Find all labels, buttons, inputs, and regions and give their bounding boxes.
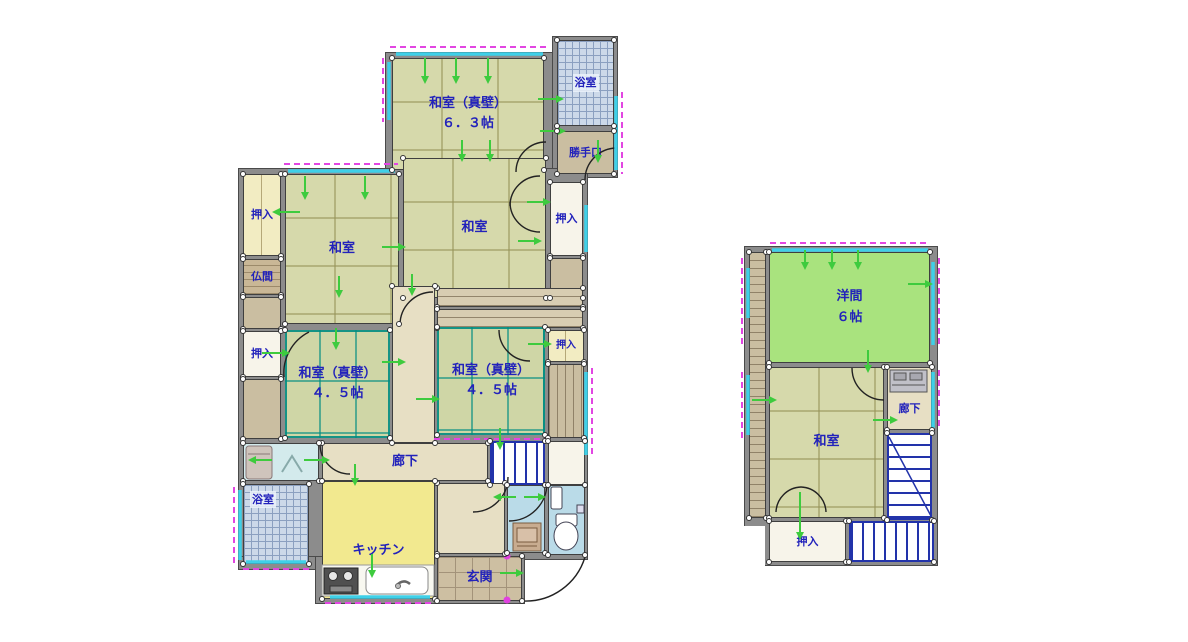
wall-joint-dot xyxy=(519,598,525,604)
room-size-label: ６．３帖 xyxy=(442,114,494,134)
wall-joint-dot xyxy=(545,361,551,367)
wall-joint-dot xyxy=(927,249,933,255)
corridor-main: 廊下 xyxy=(322,443,488,481)
room-label: 押入 xyxy=(251,345,273,362)
wall-joint-dot xyxy=(432,440,438,446)
room-bath-lower: 浴室 xyxy=(243,484,309,564)
wall-joint-dot xyxy=(611,37,617,43)
room-youma-6: 洋間 ６帖 xyxy=(769,252,930,363)
room-size-label: ４．５帖 xyxy=(311,384,363,404)
room-label: 押入 xyxy=(556,210,578,227)
wall-joint-dot xyxy=(931,518,937,524)
room-label: 押入 xyxy=(251,206,273,223)
room-washitsu-6-3: 和室（真壁） ６．３帖 xyxy=(392,58,544,170)
wall-joint-dot xyxy=(582,438,588,444)
stairs-first-floor xyxy=(490,441,545,485)
room-oshiire-2f: 押入 xyxy=(769,521,846,562)
wall-joint-dot xyxy=(282,435,288,441)
wall-joint-dot xyxy=(316,440,322,446)
room-butsuma: 仏間 xyxy=(243,259,281,295)
wall-joint-dot xyxy=(884,517,890,523)
room-oshiire-small-right: 押入 xyxy=(548,330,584,362)
wall-joint-dot xyxy=(278,256,284,262)
room-label: 和室（真壁） xyxy=(452,361,530,381)
room-washitsu-left: 和室 xyxy=(285,174,399,324)
room-closet-by-stairs xyxy=(548,441,585,485)
wall-joint-dot xyxy=(396,171,402,177)
wall-joint-dot xyxy=(389,283,395,289)
wall-joint-dot xyxy=(434,324,440,330)
wall-joint-dot xyxy=(282,171,288,177)
wall-joint-dot xyxy=(541,55,547,61)
wall-joint-dot xyxy=(400,155,406,161)
wall-joint-dot xyxy=(580,306,586,312)
wall-joint-dot xyxy=(240,440,246,446)
room-size-label: ４．５帖 xyxy=(465,381,517,401)
wall-joint-dot xyxy=(543,155,549,161)
wall-joint-dot xyxy=(434,432,440,438)
corridor-2f: 廊下 xyxy=(887,367,932,430)
wall-joint-dot xyxy=(396,321,402,327)
wall-joint-dot xyxy=(240,481,246,487)
room-genkan: 玄関 xyxy=(437,556,522,601)
wall-joint-dot xyxy=(554,128,560,134)
room-size-label: ６帖 xyxy=(836,308,862,328)
wall-joint-dot xyxy=(504,482,510,488)
room-label: 和室 xyxy=(329,239,355,259)
wall-joint-dot xyxy=(746,249,752,255)
hall-entrance xyxy=(437,483,505,554)
room-label: 和室 xyxy=(461,218,487,238)
room-laundry xyxy=(243,443,319,481)
wall-joint-dot xyxy=(746,515,752,521)
veranda-boards xyxy=(437,309,583,328)
wall-joint-dot xyxy=(766,518,772,524)
wall-joint-dot xyxy=(582,552,588,558)
balcony-strip xyxy=(749,252,766,518)
room-label: 和室（真壁） xyxy=(429,94,507,114)
room-label: 仏間 xyxy=(251,268,273,285)
wall-joint-dot xyxy=(389,167,395,173)
wall-joint-dot xyxy=(240,171,246,177)
room-oshiire-top-left: 押入 xyxy=(243,174,281,256)
wall-joint-dot xyxy=(554,171,560,177)
wall-joint-dot xyxy=(400,295,406,301)
stairs-2f-lower xyxy=(849,521,934,562)
wall-joint-dot xyxy=(541,167,547,173)
room-washitsu-4-5-left: 和室（真壁） ４．５帖 xyxy=(285,330,390,438)
wall-joint-dot xyxy=(766,559,772,565)
corridor-vertical xyxy=(392,286,435,443)
wall-joint-dot xyxy=(846,559,852,565)
room-washitsu-4-5-right: 和室（真壁） ４．５帖 xyxy=(437,327,545,435)
veranda-boards xyxy=(437,288,583,307)
wall-joint-dot xyxy=(434,553,440,559)
wall-joint-dot xyxy=(580,295,586,301)
wall-joint-dot xyxy=(846,518,852,524)
wall-joint-dot xyxy=(306,561,312,567)
wall-joint-dot xyxy=(545,482,551,488)
wall-joint-dot xyxy=(387,327,393,333)
wall-joint-dot xyxy=(884,430,890,436)
wall-joint-dot xyxy=(432,478,438,484)
room-label: 和室 xyxy=(813,432,839,452)
wall-joint-dot xyxy=(278,294,284,300)
room-label: キッチン xyxy=(352,519,404,561)
room-storage-hatch xyxy=(548,364,584,438)
wall-joint-dot xyxy=(519,553,525,559)
wall-joint-dot xyxy=(545,438,551,444)
wall-joint-dot xyxy=(611,171,617,177)
room-washitsu-2f: 和室 xyxy=(769,367,884,518)
wall-joint-dot xyxy=(434,306,440,312)
room-oshiire-mid-left: 押入 xyxy=(243,331,281,377)
room-oshiire-mid-right: 押入 xyxy=(550,182,583,256)
wall-joint-dot xyxy=(580,255,586,261)
wall-joint-dot xyxy=(766,364,772,370)
wall-joint-dot xyxy=(580,179,586,185)
wall-joint-dot xyxy=(547,255,553,261)
room-label: 浴室 xyxy=(250,491,276,508)
wall-joint-dot xyxy=(306,481,312,487)
wall-joint-dot xyxy=(432,283,438,289)
room-label: 廊下 xyxy=(899,380,921,417)
room-label: 廊下 xyxy=(392,452,418,472)
wall-joint-dot xyxy=(581,361,587,367)
wall-joint-dot xyxy=(929,364,935,370)
wall-joint-dot xyxy=(580,285,586,291)
wall-joint-dot xyxy=(389,55,395,61)
stairs-2f-upper xyxy=(887,433,932,520)
wall-joint-dot xyxy=(278,376,284,382)
wall-joint-dot xyxy=(389,440,395,446)
room-washstand xyxy=(507,485,545,553)
wall-joint-dot xyxy=(434,598,440,604)
wall-joint-dot xyxy=(582,482,588,488)
wall-joint-dot xyxy=(545,327,551,333)
room-katteguchi: 勝手口 xyxy=(557,131,614,174)
wall-joint-dot xyxy=(240,294,246,300)
room-label: 洋間 xyxy=(836,287,862,307)
wall-joint-dot xyxy=(319,478,325,484)
wall-joint-dot xyxy=(931,559,937,565)
wall-joint-dot xyxy=(929,430,935,436)
room-label: 玄関 xyxy=(466,568,492,588)
building-cutout xyxy=(744,526,765,566)
wall-joint-dot xyxy=(545,552,551,558)
wall-joint-dot xyxy=(547,295,553,301)
room-storage-c xyxy=(243,379,281,439)
wall-joint-dot xyxy=(766,249,772,255)
room-toilet xyxy=(548,485,585,555)
wall-joint-dot xyxy=(581,327,587,333)
wall-joint-dot xyxy=(282,327,288,333)
room-washitsu-center: 和室 xyxy=(403,158,546,298)
room-label: 勝手口 xyxy=(569,144,602,161)
wall-joint-dot xyxy=(240,256,246,262)
wall-joint-dot xyxy=(240,328,246,334)
wall-joint-dot xyxy=(319,596,325,602)
wall-joint-dot xyxy=(487,438,493,444)
room-label: 押入 xyxy=(797,533,819,550)
wall-joint-dot xyxy=(504,550,510,556)
wall-joint-dot xyxy=(547,179,553,185)
room-label: 浴室 xyxy=(573,74,599,91)
room-label: 押入 xyxy=(556,338,576,354)
room-kitchen: キッチン xyxy=(322,481,435,599)
room-storage-a xyxy=(243,297,281,329)
wall-joint-dot xyxy=(884,364,890,370)
floorplan-canvas: 和室（真壁） ６．３帖 浴室 勝手口 押入 仏間 和室 和室 押入 押入 和室（… xyxy=(0,0,1188,642)
wall-joint-dot xyxy=(240,376,246,382)
room-bath-upper: 浴室 xyxy=(557,40,614,126)
wall-joint-dot xyxy=(554,37,560,43)
wall-joint-dot xyxy=(240,561,246,567)
wall-joint-dot xyxy=(487,482,493,488)
wall-joint-dot xyxy=(611,128,617,134)
room-label: 和室（真壁） xyxy=(298,364,376,384)
